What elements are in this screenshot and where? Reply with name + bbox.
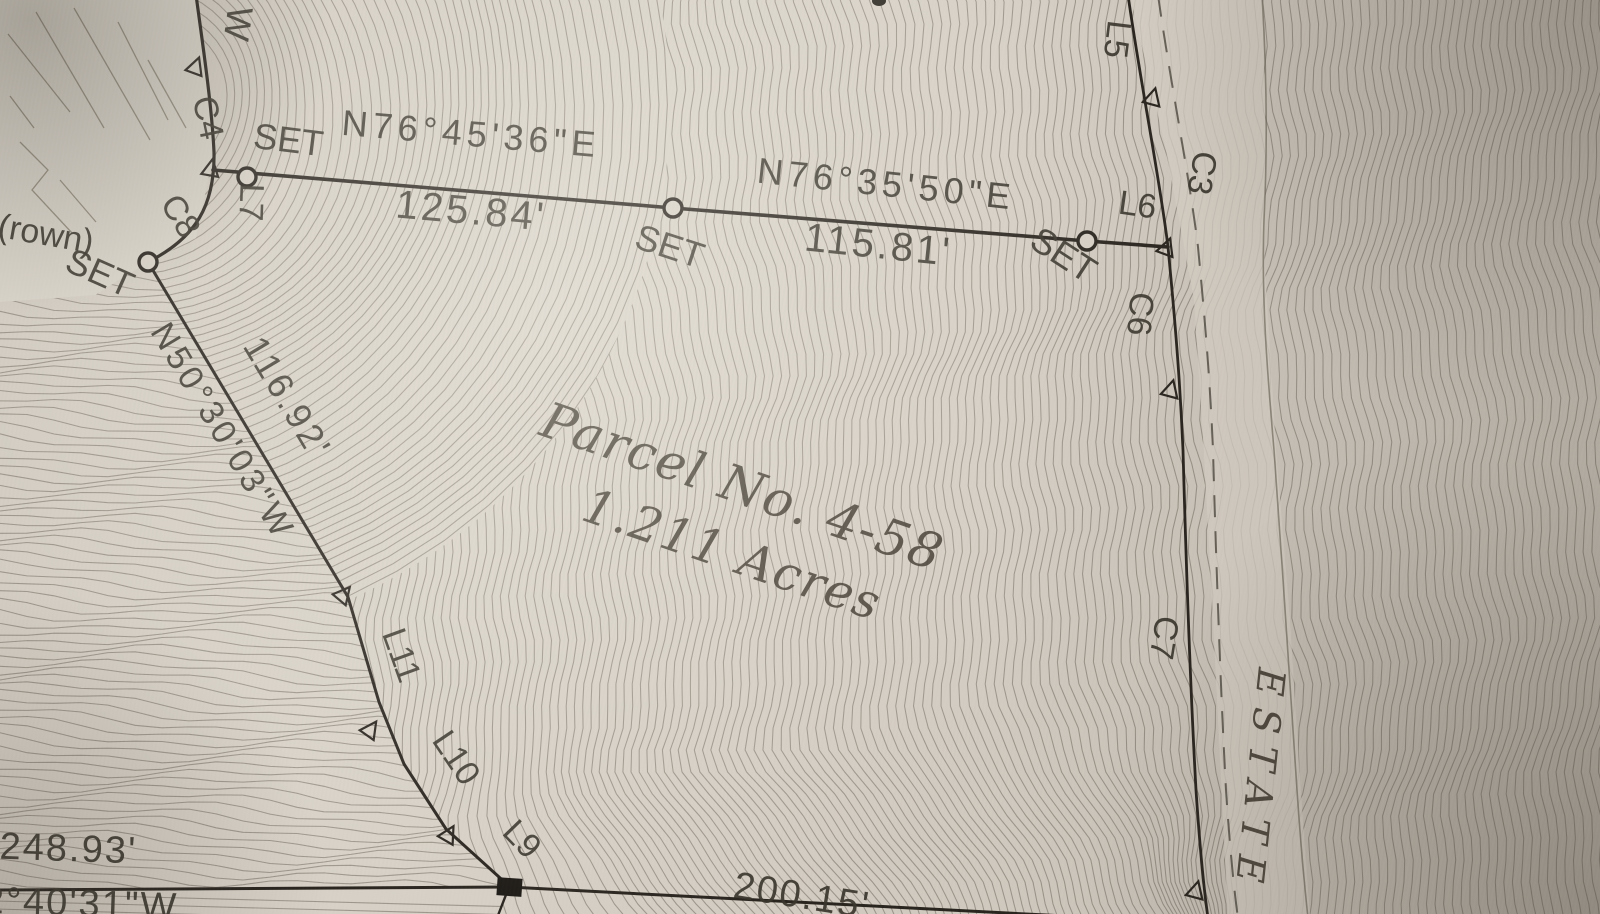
plat-photo: SET N76°45'36"E 125.84' SET N76°35'50"E … [0, 0, 1600, 914]
plat-map-svg: SET N76°45'36"E 125.84' SET N76°35'50"E … [0, 0, 1600, 914]
lighting-overlays [0, 0, 1600, 914]
